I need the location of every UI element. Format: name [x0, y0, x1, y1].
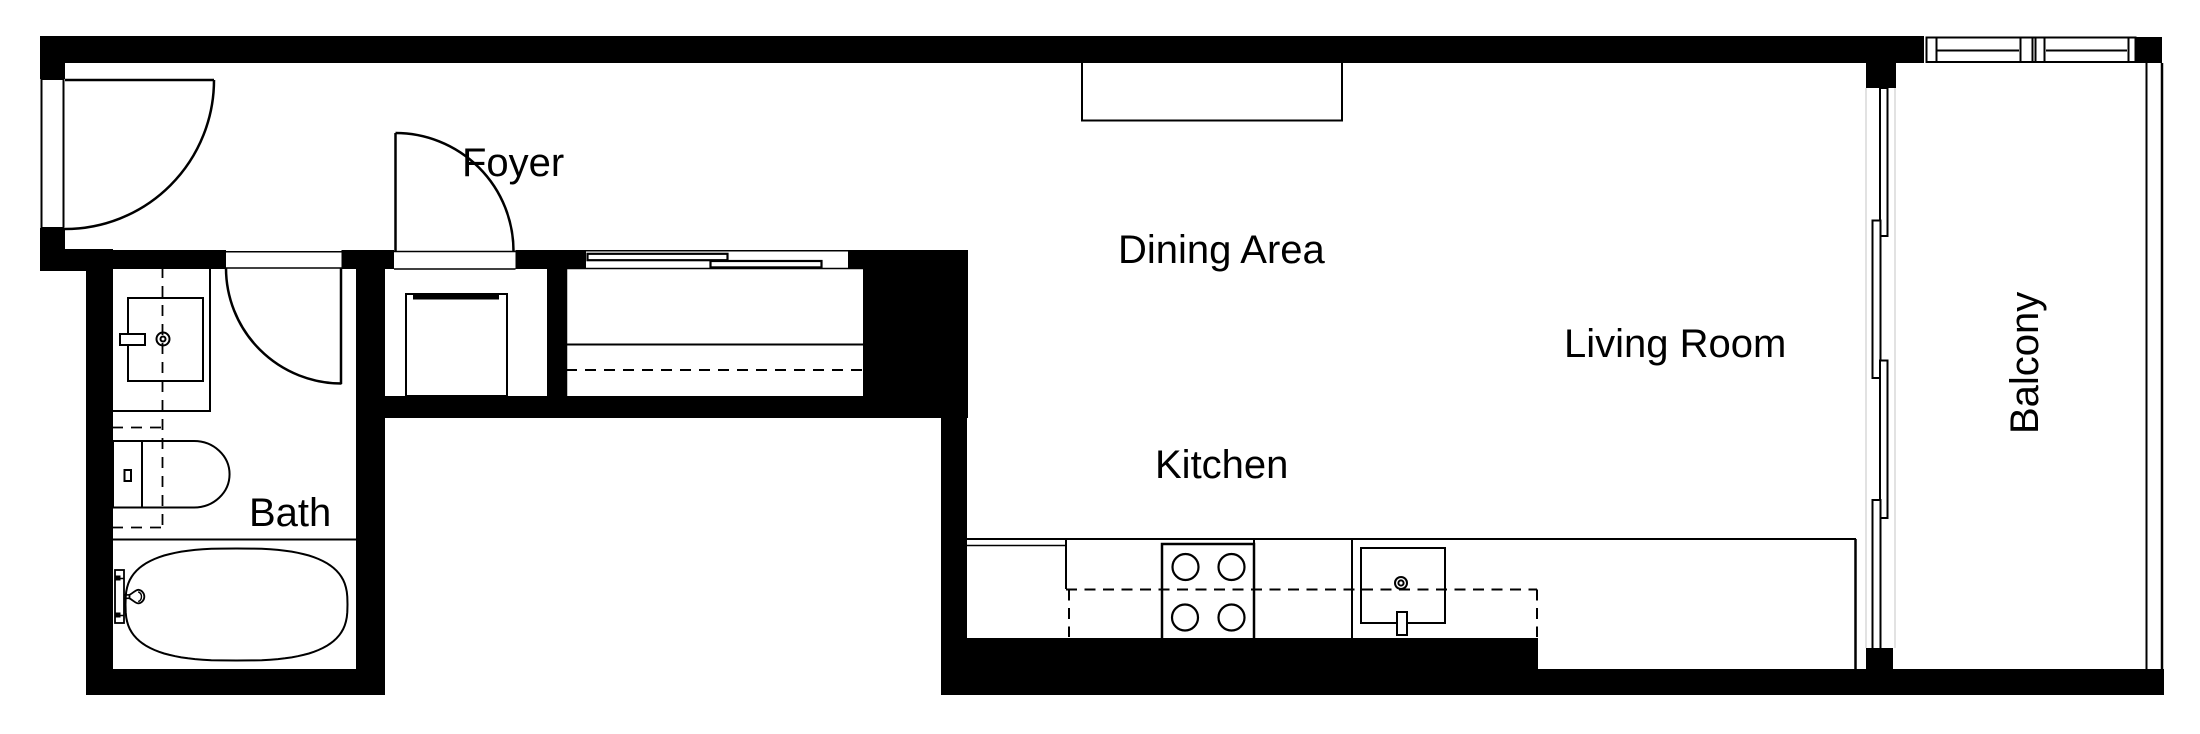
- svg-text:Balcony: Balcony: [2003, 292, 2047, 434]
- svg-text:Kitchen: Kitchen: [1155, 443, 1288, 487]
- svg-text:Foyer: Foyer: [462, 141, 564, 185]
- svg-text:Dining Area: Dining Area: [1118, 228, 1326, 272]
- svg-text:Bath: Bath: [249, 491, 331, 535]
- svg-text:Living Room: Living Room: [1564, 322, 1786, 366]
